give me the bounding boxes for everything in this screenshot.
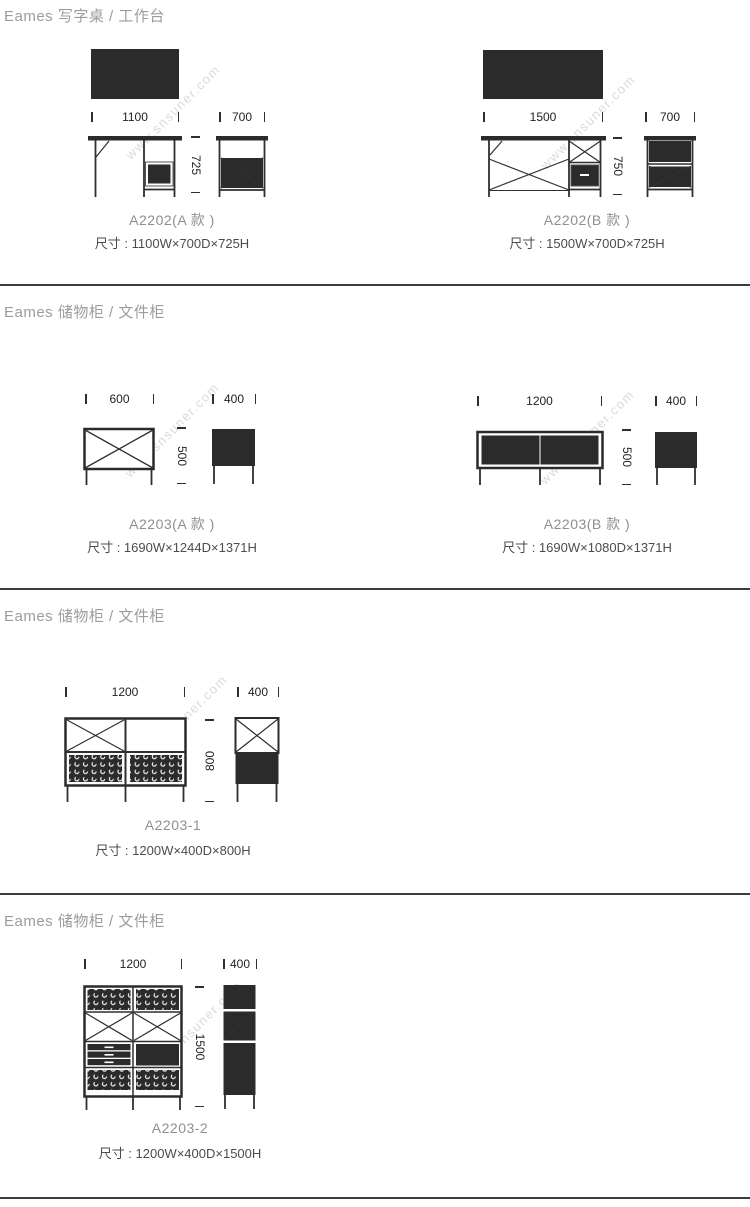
product-code: A2203-1	[93, 817, 253, 833]
side-view	[216, 134, 268, 198]
dim-depth: 400	[237, 686, 279, 698]
product-code: A2202(B 款 )	[507, 210, 667, 230]
top-view	[91, 49, 179, 99]
dim-depth: 400	[223, 958, 257, 970]
dim-width: 1500	[483, 111, 603, 123]
front-view	[83, 984, 184, 1112]
dim-depth: 400	[655, 395, 697, 407]
page-bottom-divider	[0, 1197, 750, 1199]
dim-height-label: 500	[175, 445, 189, 465]
top-view	[483, 50, 603, 99]
product-code: A2203-2	[100, 1120, 260, 1136]
dim-height-label: 1500	[193, 1033, 207, 1060]
product-size: 尺寸 : 1500W×700D×725H	[467, 233, 707, 252]
furniture-spec-sheet: Eames 写字桌 / 工作台 www.snsuner.com www.snsu…	[0, 0, 750, 1207]
product-size: 尺寸 : 1200W×400D×800H	[53, 840, 293, 859]
dim-depth-label: 400	[655, 395, 697, 407]
dim-height: 500	[621, 429, 632, 485]
dim-width: 600	[85, 393, 154, 405]
section-title: Eames 储物柜 / 文件柜	[4, 910, 165, 931]
dim-height: 1500	[194, 986, 205, 1107]
dim-height: 800	[204, 719, 215, 802]
dim-width: 1100	[91, 111, 179, 123]
front-view	[83, 426, 155, 488]
dim-height-label: 750	[611, 156, 625, 176]
product-size: 尺寸 : 1100W×700D×725H	[52, 233, 292, 252]
dim-height-label: 500	[620, 447, 634, 467]
product-code: A2203(B 款 )	[507, 514, 667, 534]
section-title: Eames 写字桌 / 工作台	[4, 5, 165, 26]
dim-width-label: 1100	[91, 111, 179, 123]
front-view	[481, 134, 606, 198]
dim-width: 1200	[477, 395, 602, 407]
product-code: A2202(A 款 )	[92, 210, 252, 230]
dim-width-label: 1200	[65, 686, 185, 698]
dim-depth-label: 700	[219, 111, 265, 123]
section-divider	[0, 588, 750, 590]
side-view	[221, 983, 260, 1111]
section-title: Eames 储物柜 / 文件柜	[4, 605, 165, 626]
dim-width-label: 1200	[84, 958, 182, 970]
dim-width-label: 1500	[483, 111, 603, 123]
front-view	[64, 716, 188, 804]
dim-depth-label: 400	[212, 393, 256, 405]
product-code: A2203(A 款 )	[92, 514, 252, 534]
section-title: Eames 储物柜 / 文件柜	[4, 301, 165, 322]
section-divider	[0, 284, 750, 286]
dim-height: 500	[176, 427, 187, 484]
dim-depth: 400	[212, 393, 256, 405]
side-view	[210, 426, 257, 488]
dim-height: 725	[190, 136, 201, 193]
dim-width: 1200	[65, 686, 185, 698]
dim-width-label: 1200	[477, 395, 602, 407]
product-size: 尺寸 : 1690W×1244D×1371H	[52, 537, 292, 556]
product-size: 尺寸 : 1200W×400D×1500H	[60, 1143, 300, 1162]
dim-depth-label: 400	[237, 686, 279, 698]
section-divider	[0, 893, 750, 895]
dim-depth: 700	[219, 111, 265, 123]
dim-depth: 700	[645, 111, 695, 123]
dim-depth-label: 400	[223, 958, 257, 970]
dim-depth-label: 700	[645, 111, 695, 123]
side-view	[653, 429, 699, 487]
side-view	[644, 134, 696, 198]
dim-width: 1200	[84, 958, 182, 970]
dim-height: 750	[612, 137, 623, 195]
product-size: 尺寸 : 1690W×1080D×1371H	[467, 537, 707, 556]
dim-width-label: 600	[85, 393, 154, 405]
front-view	[476, 429, 604, 487]
dim-height-label: 800	[203, 750, 217, 770]
dim-height-label: 725	[189, 154, 203, 174]
side-view	[234, 715, 282, 804]
front-view	[88, 134, 182, 198]
